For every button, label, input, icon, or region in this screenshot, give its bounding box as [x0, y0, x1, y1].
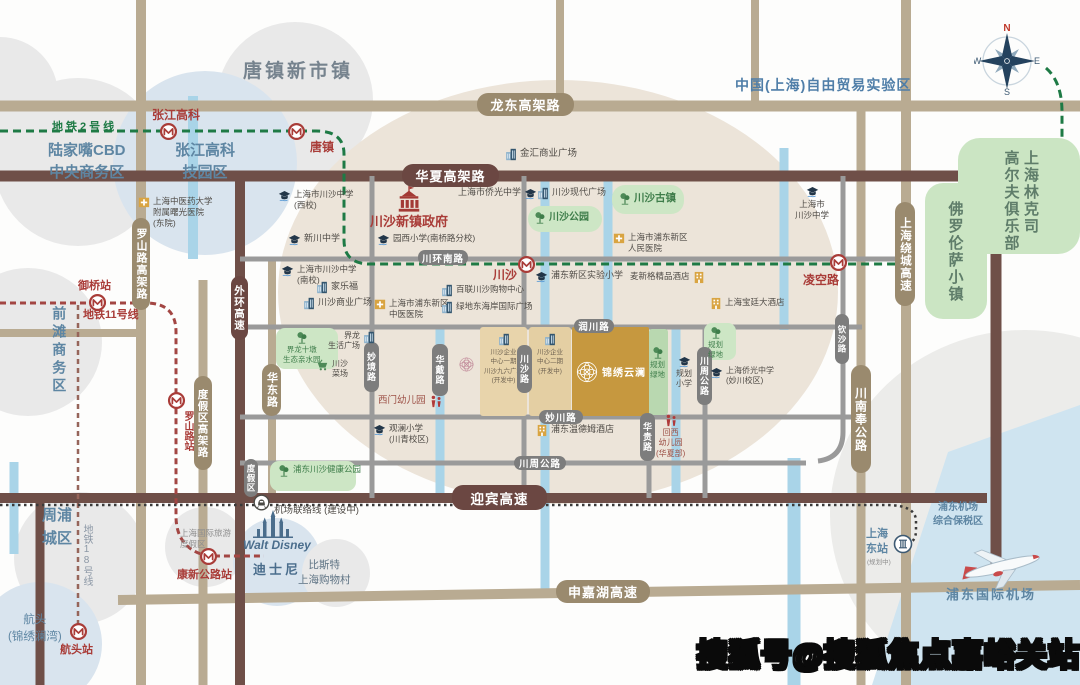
watermark-sohu: 搜狐号@搜狐焦点嘉峪关站	[697, 630, 1080, 675]
chuansha-commercial-plaza: 川沙商业广场	[303, 297, 372, 310]
huixi-kindergarten: 回西 幼儿园 (华夏部)	[656, 414, 685, 459]
kids-icon	[429, 395, 443, 408]
chuansha-middle-school-west: 上海市川沙中学 (西校)	[278, 189, 354, 211]
school-icon	[373, 423, 386, 436]
lujiazui-cbd-label: 陆家嘴CBD 中央商务区	[48, 140, 126, 184]
building-icon	[441, 284, 453, 297]
maixinge-boutique-hotel: 麦新格精品酒店	[630, 271, 705, 284]
badge-resort-area: 度假区	[244, 459, 258, 497]
jinhui-commercial-plaza: 金汇商业广场	[505, 148, 577, 161]
pudong-experimental-primary-label: 浦东新区实验小学	[551, 270, 623, 282]
badge-huadong-rd: 华东路	[262, 364, 281, 416]
shanghai-east-station-label: 上海 东站	[866, 527, 888, 558]
luoshanlu-station-label: 罗山路站	[181, 411, 194, 451]
pudong-tcm-hospital-label: 上海市浦东新区 中医医院	[389, 298, 449, 320]
lujiazui-cbd: 陆家嘴CBD 中央商务区	[48, 140, 126, 184]
badge-chuannanfeng-highway: 川南奉公路	[851, 365, 871, 473]
hotel-icon	[710, 297, 722, 310]
badge-longdong-viaduct: 龙东高架路	[477, 93, 574, 116]
disney-label-label: 迪士尼	[253, 562, 301, 579]
property-name: 锦绣云澜	[602, 364, 646, 379]
zhangjiang-hi-tech-park-label: 张江高科 技园区	[175, 140, 235, 184]
ximen-kindergarten: 西门幼儿园	[378, 395, 443, 408]
hangtou-area: 航头 (锦绣澜湾)	[8, 612, 62, 647]
badge-runchuan-rd: 润川路	[574, 319, 614, 333]
carrefour-label: 家乐福	[331, 281, 358, 293]
guanlan-primary-school-label: 观澜小学 (川青校区)	[389, 423, 429, 445]
greenland-east-coast-plaza: 绿地东海岸国际广场	[441, 301, 533, 314]
building-icon	[544, 333, 556, 346]
qiaoguang-middle-school-label: 上海市侨光中学	[458, 187, 521, 199]
pudong-experimental-primary: 浦东新区实验小学	[535, 270, 623, 283]
east-station-note: (规划中)	[867, 559, 891, 567]
pudong-airport-bonded-zone-label: 浦东机场 综合保税区	[933, 501, 983, 529]
school-icon	[806, 185, 819, 198]
metro-icon	[88, 293, 107, 312]
greenland-east-coast-plaza-label: 绿地东海岸国际广场	[456, 301, 533, 312]
chuansha-new-town-government: 川沙新镇政府	[370, 186, 448, 231]
building-icon	[363, 331, 375, 344]
shuguang-hospital: 上海中医药大学 附属曙光医院 (东院)	[138, 196, 213, 229]
badge-chuanzhou-highway-h: 川周公路	[514, 456, 566, 470]
jielong-eco-park: 界龙十墩 生态亲水园	[283, 331, 321, 365]
guanlan-primary-school: 观澜小学 (川青校区)	[373, 423, 429, 445]
qiaoguang-ms-miaochuan-campus-label: 上海侨光中学 (妙川校区)	[726, 366, 774, 387]
qiantan-business-district: 前滩商务区	[50, 306, 68, 396]
line2-label: 地铁2号线	[52, 120, 117, 134]
hotel-icon	[536, 424, 548, 437]
hospital-icon	[374, 298, 386, 310]
building-icon	[505, 148, 517, 161]
school-icon	[678, 355, 691, 368]
building-icon	[316, 281, 328, 294]
building-icon	[537, 187, 549, 200]
bicester-village-label: 比斯特 上海购物村	[298, 558, 351, 587]
jielong-eco-park-label: 界龙十墩 生态亲水园	[283, 345, 321, 365]
wyndham-hotel-label: 浦东温德姆酒店	[551, 424, 614, 436]
huixi-kindergarten-label: 回西 幼儿园 (华夏部)	[656, 428, 685, 459]
chuansha-old-town-label: 川沙古镇	[634, 192, 676, 206]
florentia-village: 佛罗伦萨小镇	[945, 201, 965, 303]
tree-icon	[619, 192, 631, 205]
east-station-note-label: (规划中)	[867, 559, 891, 567]
jielong-life-plaza-label: 界龙 生活广场	[328, 331, 360, 352]
lingkonglu-station	[829, 253, 848, 277]
tangzhen-new-town: 唐镇新市镇	[243, 60, 353, 85]
svg-text:N: N	[1003, 23, 1010, 34]
bailian-chuansha-mall: 百联川沙购物中心	[441, 284, 524, 297]
compass-rose: NSWE	[974, 22, 1040, 101]
property-rosette-icon	[575, 360, 599, 384]
badge-huaxia-viaduct: 华夏高架路	[402, 164, 499, 187]
ftz-label-label: 中国(上海)自由贸易实验区	[735, 76, 911, 94]
maixinge-boutique-hotel-label: 麦新格精品酒店	[630, 271, 690, 282]
chuansha-old-town: 川沙古镇	[619, 192, 676, 206]
planned-green-1-label: 规划 绿地	[708, 340, 723, 360]
badge-chuanhuan-south-rd: 川环南路	[418, 250, 468, 265]
zhoupu-urban-area: 周浦 城区	[42, 505, 72, 550]
zhoupu-urban-area-label: 周浦 城区	[42, 505, 72, 550]
badge-chuansha-rd: 川沙路	[517, 345, 532, 393]
chuansha-commercial-plaza-label: 川沙商业广场	[318, 297, 372, 309]
airport-link-train-icon	[253, 494, 270, 516]
chuansha-enterprise-center-2-label: 川沙企业 中心二期 (开发中)	[537, 348, 563, 376]
badge-resort-viaduct: 度假区高架路	[194, 376, 212, 470]
links-golf-club-label: 上海林克司 高尔夫俱乐部	[1001, 150, 1040, 252]
tree-icon	[710, 326, 722, 339]
line2-label-label: 地铁2号线	[52, 120, 117, 134]
ximen-kindergarten-label: 西门幼儿园	[378, 395, 426, 407]
chuansha-location-map: 锦绣云澜 搜狐号@搜狐焦点嘉峪关站 川沙企业 中心一期 川沙九六广场 (开发中)…	[0, 0, 1080, 685]
ftz-label: 中国(上海)自由贸易实验区	[735, 76, 911, 94]
metro-icon	[199, 547, 218, 566]
hangtou-area-label: 航头 (锦绣澜湾)	[8, 612, 62, 647]
badge-huadai-rd: 华戴路	[432, 344, 448, 396]
bicester-village: 比斯特 上海购物村	[298, 558, 351, 587]
metro-icon	[829, 253, 848, 272]
yuanxi-primary-school: 园西小学(南桥路分校)	[377, 233, 475, 246]
pink-rosette-icon	[458, 356, 475, 378]
school-icon	[377, 233, 390, 246]
zhangjiang-hi-tech-park: 张江高科 技园区	[175, 140, 235, 184]
yuanxi-primary-school-label: 园西小学(南桥路分校)	[393, 233, 475, 244]
gov-icon	[394, 186, 424, 213]
tree-icon	[652, 346, 664, 359]
chuansha-new-town-government-label: 川沙新镇政府	[370, 214, 448, 231]
pudong-chuansha-health-park-label: 浦东川沙健康公园	[293, 464, 361, 475]
tree-icon	[278, 464, 290, 477]
chuansha-modern-plaza: 川沙现代广场	[537, 187, 606, 200]
badge-huagui-rd: 华贵路	[640, 413, 655, 461]
xinchuan-middle-school: 新川中学	[288, 233, 340, 246]
chuansha-station-label: 川沙	[493, 268, 517, 284]
chuansha-enterprise-center-2: 川沙企业 中心二期 (开发中)	[529, 327, 571, 416]
pudong-airport-bonded-zone: 浦东机场 综合保税区	[933, 501, 983, 529]
disney-label: 迪士尼	[253, 562, 301, 579]
luoshanlu-station	[167, 391, 186, 415]
florentia-village-label: 佛罗伦萨小镇	[945, 201, 965, 303]
metro-icon	[167, 391, 186, 410]
jinhui-commercial-plaza-label: 金汇商业广场	[520, 148, 577, 160]
qiaoguang-middle-school: 上海市侨光中学	[458, 187, 537, 200]
school-icon	[288, 233, 301, 246]
kangxin-highway-station	[199, 547, 218, 571]
metro-icon	[287, 122, 306, 141]
chuansha-middle-school-east: 上海市 川沙中学	[795, 185, 829, 221]
hotel-icon	[693, 271, 705, 284]
chuansha-middle-school-east-label: 上海市 川沙中学	[795, 199, 829, 221]
school-icon	[281, 264, 294, 277]
badge-raocheng-expressway: 上海绕城高速	[895, 202, 915, 306]
chuansha-park-label: 川沙公园	[549, 211, 589, 224]
hospital-icon	[138, 196, 150, 208]
line18-label-label: 地铁18号线	[80, 524, 93, 586]
tangzhen-station-label: 唐镇	[310, 140, 334, 156]
school-icon	[710, 366, 723, 379]
line18-label: 地铁18号线	[80, 524, 93, 586]
planned-green-2-label: 规划 绿地	[650, 360, 665, 380]
bailian-chuansha-mall-label: 百联川沙购物中心	[456, 284, 524, 295]
pudong-renmin-hospital-label: 上海市浦东新区 人民医院	[628, 232, 688, 254]
badge-miaochuan-rd: 妙川路	[539, 410, 583, 424]
tangzhen-station	[287, 122, 306, 146]
pudong-chuansha-health-park: 浦东川沙健康公园	[278, 464, 361, 477]
pudong-renmin-hospital: 上海市浦东新区 人民医院	[613, 232, 688, 254]
chuansha-middle-school-west-label: 上海市川沙中学 (西校)	[294, 189, 354, 211]
shanghai-east-station-label-label: 上海 东站	[866, 527, 888, 558]
pudong-tcm-hospital: 上海市浦东新区 中医医院	[374, 298, 449, 320]
metro-icon	[517, 255, 536, 274]
shuguang-hospital-label: 上海中医药大学 附属曙光医院 (东院)	[153, 196, 213, 229]
badge-qinsha-rd: 钦沙路	[835, 314, 849, 364]
baoting-hotel-label: 上海宝廷大酒店	[725, 297, 785, 308]
hospital-icon	[613, 232, 625, 244]
school-icon	[278, 189, 291, 202]
metro-icon	[159, 122, 178, 141]
baoting-hotel: 上海宝廷大酒店	[710, 297, 785, 310]
yuqiao-station	[88, 293, 107, 317]
planned-green-2: 规划 绿地	[650, 346, 665, 380]
hangtou-station	[69, 622, 88, 646]
metro-icon	[69, 622, 88, 641]
qiaoguang-ms-miaochuan-campus: 上海侨光中学 (妙川校区)	[710, 366, 774, 387]
tangzhen-new-town-label: 唐镇新市镇	[243, 60, 353, 85]
chuansha-park: 川沙公园	[534, 211, 589, 224]
yuqiao-station-label: 御桥站	[78, 279, 111, 293]
school-icon	[535, 270, 548, 283]
property-jinxiu-yunlan: 锦绣云澜	[572, 327, 649, 416]
chuansha-modern-plaza-label: 川沙现代广场	[552, 187, 606, 199]
airplane-illustration	[950, 534, 1050, 601]
planned-primary-school: 规划 小学	[676, 355, 692, 390]
shanghai-east-station-icon	[893, 534, 913, 559]
links-golf-club: 上海林克司 高尔夫俱乐部	[1001, 150, 1040, 252]
badge-shenjiahu-expressway: 申嘉湖高速	[556, 580, 650, 603]
chuansha-market-label: 川沙 菜场	[332, 359, 348, 380]
badge-luoshanlu-viaduct: 罗山路高架路	[132, 218, 150, 310]
chuansha-station	[517, 255, 536, 279]
tree-icon	[296, 331, 308, 344]
planned-primary-school-label: 规划 小学	[676, 369, 692, 390]
school-icon	[524, 187, 537, 200]
jielong-life-plaza: 界龙 生活广场	[328, 331, 375, 352]
building-icon	[303, 297, 315, 310]
badge-yingbin-expressway: 迎宾高速	[452, 485, 547, 510]
qiantan-business-district-label: 前滩商务区	[50, 306, 68, 396]
zhangjiang-hi-tech-station	[159, 122, 178, 146]
kids-icon	[664, 414, 678, 427]
building-icon	[498, 333, 510, 346]
planned-green-1: 规划 绿地	[708, 326, 723, 360]
xinchuan-middle-school-label: 新川中学	[304, 233, 340, 245]
tree-icon	[534, 211, 546, 224]
badge-outer-ring-expressway: 外环高速	[231, 276, 248, 340]
carrefour: 家乐福	[316, 281, 358, 294]
building-icon	[441, 301, 453, 314]
wyndham-hotel: 浦东温德姆酒店	[536, 424, 614, 437]
